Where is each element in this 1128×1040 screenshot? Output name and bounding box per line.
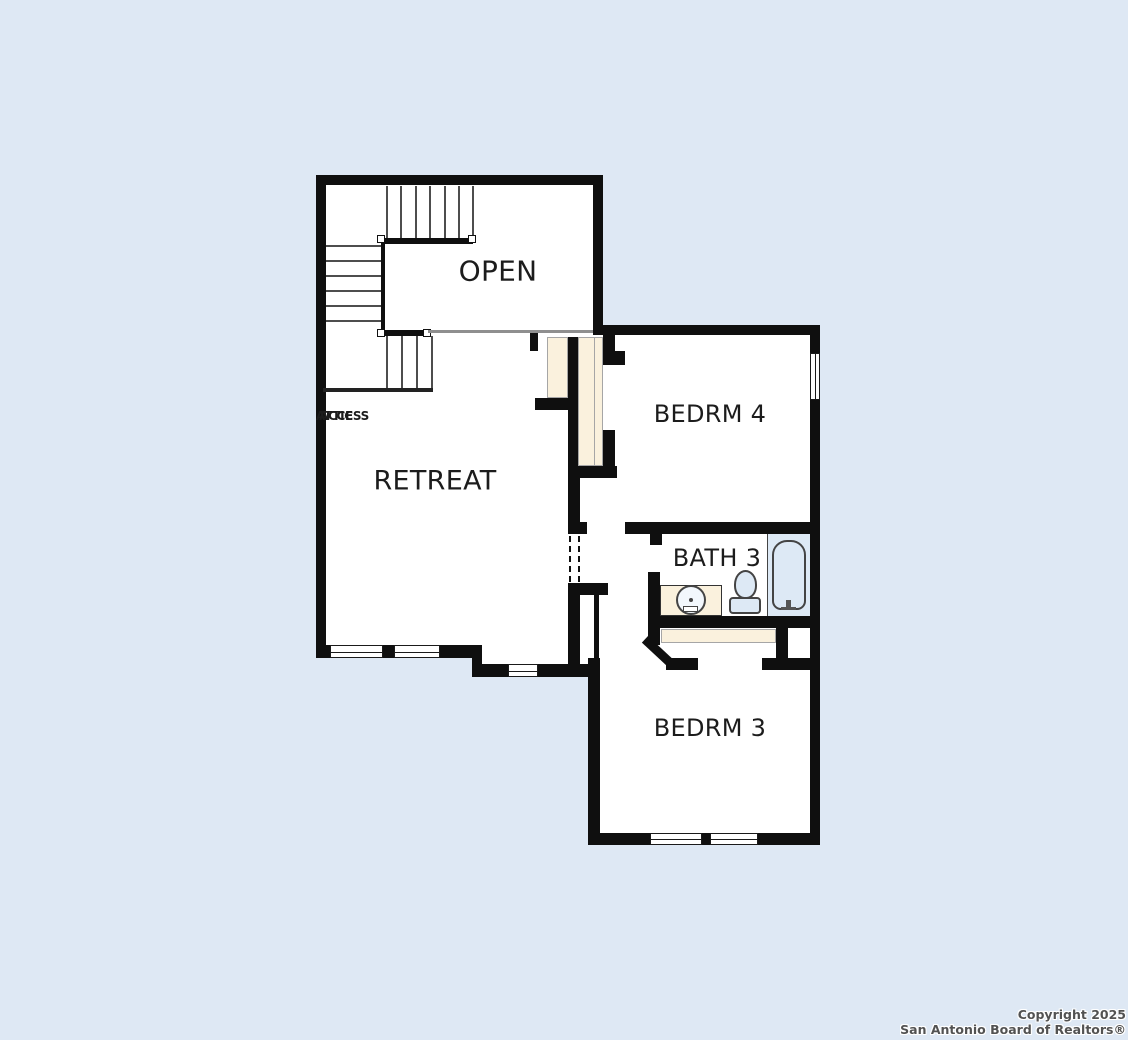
attic-access-line1: ATTIC — [316, 409, 353, 424]
floor-plan-canvas: OPEN RETREAT BEDRM 4 BATH 3 BEDRM 3 ATTI… — [0, 0, 1128, 1040]
wall-bedrm3-top-left — [666, 658, 698, 670]
cased-opening-dashed-line — [569, 536, 571, 582]
door-closet-b — [578, 337, 603, 466]
wall-closet-connector — [776, 628, 788, 670]
wall-bedrm3-bottom — [588, 833, 820, 845]
bathtub-faucet-base — [781, 607, 796, 610]
wall-right — [810, 325, 820, 845]
stair-tread — [386, 336, 388, 388]
railing-post — [377, 329, 385, 337]
stair-tread — [326, 260, 381, 262]
room-label-open: OPEN — [459, 255, 538, 288]
room-label-bath3: BATH 3 — [673, 544, 761, 572]
stair-railing — [381, 330, 428, 336]
wall-bath3-stub — [650, 534, 662, 545]
stair-tread — [401, 336, 403, 388]
railing-post — [468, 235, 476, 243]
attic-access-label: ATTIC ACCESS — [316, 409, 372, 424]
stair-tread — [400, 186, 402, 240]
room-label-bedrm4: BEDRM 4 — [654, 400, 767, 428]
cased-opening-dashed-line — [578, 536, 580, 582]
sink-front-notch — [683, 606, 698, 612]
window-bedrm3-1 — [650, 833, 702, 845]
stair-tread — [326, 275, 381, 277]
wall-bedrm4-west-lower — [603, 430, 615, 478]
railing-post — [377, 235, 385, 243]
footer-copyright: Copyright 2025 San Antonio Board of Real… — [900, 1007, 1126, 1037]
window-lower-hall — [508, 664, 538, 677]
wall-bedrm4-door-jamb — [603, 351, 625, 365]
wall-hall-foot — [568, 522, 587, 534]
wall-bedrm3-west — [588, 658, 600, 845]
copyright-line2: San Antonio Board of Realtors® — [900, 1022, 1126, 1037]
stair-tread — [416, 336, 418, 388]
door-closet-a — [547, 337, 568, 398]
stair-tread — [326, 290, 381, 292]
window-retreat-2 — [394, 645, 440, 658]
window-bedrm3-2 — [710, 833, 758, 845]
stair-tread — [386, 186, 388, 240]
stair-landing-edge — [323, 388, 433, 392]
stair-tread — [326, 245, 381, 247]
closet-shelf-strip — [661, 629, 776, 643]
stair-tread — [326, 305, 381, 307]
window-retreat-1 — [330, 645, 383, 658]
wall-hall-tee-vertical — [568, 583, 580, 667]
toilet-bowl — [734, 570, 757, 599]
stair-tread — [472, 186, 474, 240]
stair-tread — [458, 186, 460, 240]
stair-tread — [444, 186, 446, 240]
room-label-bedrm3: BEDRM 3 — [654, 714, 767, 742]
wall-bedrm3-west-thin — [594, 595, 599, 665]
room-label-retreat: RETREAT — [373, 466, 496, 497]
door-divider-line — [594, 338, 595, 465]
wall-bath3-top — [625, 522, 810, 534]
wall-bath3-bottom — [648, 616, 810, 628]
sink-drain-dot — [689, 598, 693, 602]
open-to-below-edge-line — [428, 330, 593, 333]
stair-railing — [381, 238, 473, 244]
toilet-tank — [729, 597, 761, 614]
wall-bath3-west — [648, 572, 660, 645]
stair-tread — [326, 320, 381, 322]
stair-railing — [381, 240, 385, 332]
window-bedrm4 — [810, 353, 820, 400]
copyright-line1: Copyright 2025 — [900, 1007, 1126, 1022]
wall-bedrm4-top — [593, 325, 820, 335]
stair-tread — [415, 186, 417, 240]
stair-tread — [431, 336, 433, 388]
stair-tread — [429, 186, 431, 240]
